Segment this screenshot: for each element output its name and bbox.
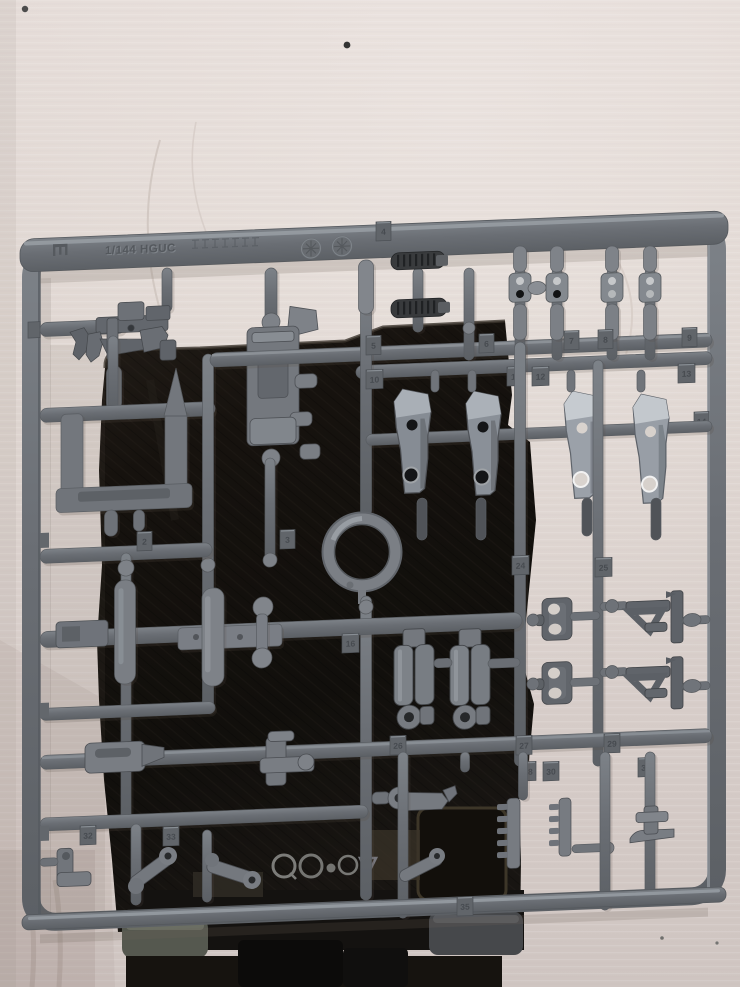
svg-text:27: 27 — [519, 740, 529, 750]
svg-text:26: 26 — [393, 741, 403, 751]
svg-text:4: 4 — [381, 227, 386, 237]
svg-text:8: 8 — [603, 335, 608, 345]
svg-text:5: 5 — [371, 341, 376, 351]
svg-text:10: 10 — [370, 374, 380, 384]
svg-text:32: 32 — [83, 830, 93, 840]
svg-text:9: 9 — [687, 333, 692, 343]
svg-text:29: 29 — [607, 739, 617, 749]
svg-text:13: 13 — [682, 369, 692, 379]
svg-text:E: E — [48, 242, 71, 257]
svg-text:24: 24 — [516, 560, 526, 570]
svg-text:12: 12 — [536, 371, 546, 381]
svg-text:16: 16 — [346, 638, 356, 648]
svg-text:33: 33 — [166, 832, 176, 842]
svg-text:25: 25 — [599, 562, 609, 572]
svg-text:2: 2 — [142, 537, 147, 547]
svg-text:35: 35 — [460, 902, 470, 912]
svg-text:6: 6 — [484, 339, 489, 349]
svg-text:7: 7 — [569, 336, 574, 346]
svg-text:3: 3 — [285, 535, 290, 545]
svg-text:30: 30 — [546, 766, 556, 776]
